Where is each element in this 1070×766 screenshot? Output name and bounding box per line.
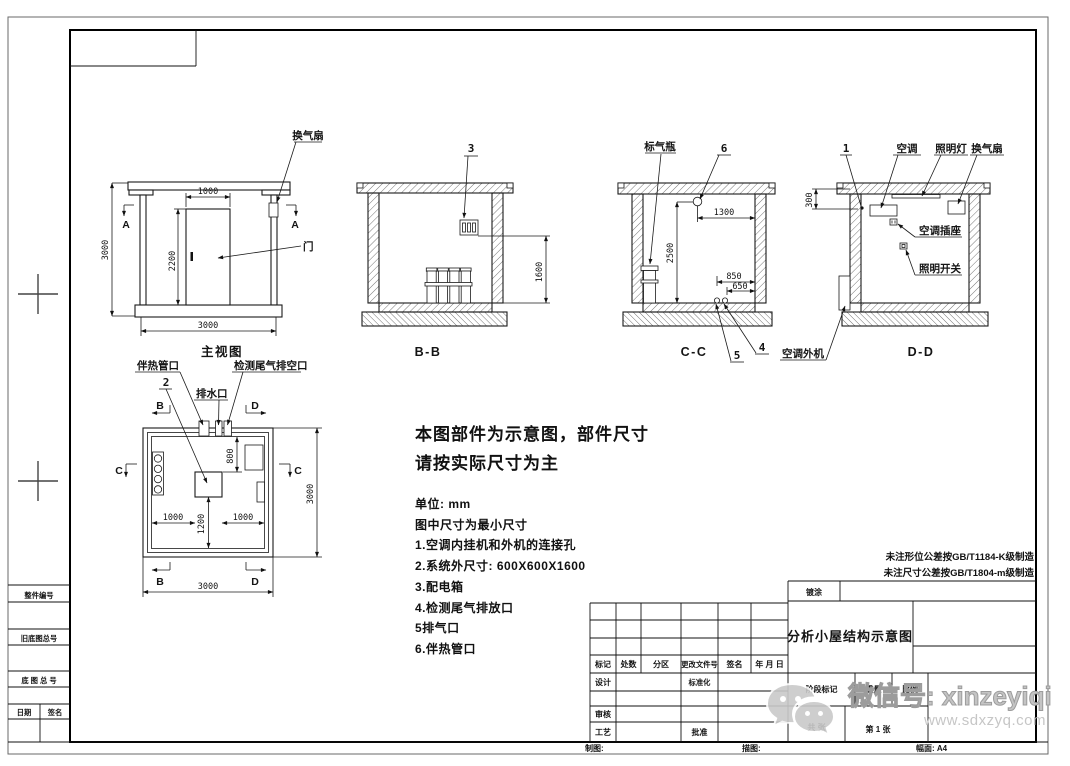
watermark-text: 微信号: xinzeyiqi www.sdxzyq.com xyxy=(848,680,1046,729)
fan-label: 换气扇 xyxy=(292,129,324,142)
drain-label: 排水口 xyxy=(196,387,228,400)
ac-indoor-unit xyxy=(870,205,897,216)
door-handle xyxy=(191,252,194,261)
register-mark xyxy=(18,274,58,314)
dim-text: 1000 xyxy=(198,187,218,197)
drawing-title: 分析小屋结构示意图 xyxy=(787,629,913,644)
note-unit: 单位: mm xyxy=(415,494,649,515)
watermark: 微信号: xinzeyiqi www.sdxzyq.com xyxy=(764,680,1046,744)
dim-text: 650 xyxy=(732,282,747,292)
side-row-3-label: 底 图 总 号 xyxy=(21,676,56,685)
callout-number: 1 xyxy=(843,142,850,155)
dim-1600: 1600 xyxy=(478,236,550,303)
lamp-label: 照明灯 xyxy=(935,142,967,155)
callout-number: 3 xyxy=(468,142,475,155)
section-letter: A xyxy=(291,219,299,231)
gas-cylinders xyxy=(425,268,472,303)
connection-hole xyxy=(860,206,863,209)
side-signature-label: 签名 xyxy=(47,708,63,717)
rev-header-signature: 签名 xyxy=(726,659,743,669)
draft-label: 制图: xyxy=(585,743,604,753)
dim-text: 1000 xyxy=(233,513,253,523)
format-label: 幅面: A4 xyxy=(916,743,948,753)
section-letter: D xyxy=(251,400,259,412)
light-switch xyxy=(900,243,907,249)
note-item-5: 5排气口 xyxy=(415,618,649,639)
cylinder-label: 标气瓶 xyxy=(643,140,676,153)
section-view-cc: 6 标气瓶 2500 1300 850 650 xyxy=(618,140,775,362)
door-label: 门 xyxy=(303,240,314,253)
section-mark-d-top: D xyxy=(246,400,266,413)
section-mark-b-top: B xyxy=(152,400,170,413)
base-slab xyxy=(842,312,988,326)
side-row-2-label: 旧底图总号 xyxy=(21,634,57,643)
socket-callout: 空调插座 xyxy=(898,224,962,237)
section-view-bb: 3 1600 B-B xyxy=(357,142,550,359)
tolerance-line-2: 未注尺寸公差按GB/T1804-m级制造 xyxy=(884,566,1034,582)
heat-trace-port xyxy=(693,197,702,211)
base-slab xyxy=(623,312,772,326)
gas-cylinder xyxy=(641,266,658,303)
right-wall xyxy=(755,194,766,303)
dim-text: 2200 xyxy=(168,251,178,271)
front-view: 1000 2200 3000 3000 A A 换气扇 xyxy=(101,129,324,359)
floor-slab xyxy=(861,303,969,312)
dim-text: 3000 xyxy=(198,321,218,331)
dim-650: 650 xyxy=(727,282,755,295)
exhaust-vent-label: 检测尾气排空口 xyxy=(234,359,308,372)
exhaust-vent-callout: 检测尾气排空口 xyxy=(228,359,308,425)
dim-text: 3000 xyxy=(306,484,316,504)
note-headline-1: 本图部件为示意图，部件尺寸 xyxy=(415,420,649,449)
dim-width-3000: 3000 xyxy=(141,317,276,336)
section-cc-title: C-C xyxy=(681,345,708,359)
ac-outdoor-label: 空调外机 xyxy=(782,347,824,360)
section-mark-d-bottom: D xyxy=(246,562,266,588)
role-process: 工艺 xyxy=(595,727,611,737)
section-letter: C xyxy=(294,465,302,477)
base-slab xyxy=(135,305,282,317)
dim-text: 3000 xyxy=(101,240,111,260)
section-letter: D xyxy=(251,576,259,588)
ac-socket xyxy=(890,219,897,225)
section-mark-a-right: A xyxy=(286,205,299,231)
watermark-website: www.sdxzyq.com xyxy=(848,712,1046,729)
floor-slab xyxy=(379,303,492,312)
ac-outdoor-callout: 空调外机 xyxy=(780,306,845,360)
dim-text: 800 xyxy=(226,448,236,463)
callout-3: 3 xyxy=(464,142,478,218)
note-headline-2: 请按实际尺寸为主 xyxy=(415,449,649,478)
note-item-3: 3.配电箱 xyxy=(415,577,649,598)
rev-header-change-doc: 更改文件号 xyxy=(680,660,717,669)
fan-label: 换气扇 xyxy=(971,142,1003,155)
role-review: 审核 xyxy=(595,709,611,719)
heat-pipe-label: 伴热管口 xyxy=(136,359,179,372)
door-callout: 门 xyxy=(218,240,314,258)
plan-view: 800 1000 1200 1000 3000 3000 B xyxy=(115,359,322,597)
role-approve: 批准 xyxy=(692,727,708,737)
exhaust-fan xyxy=(269,203,278,217)
callout-number: 2 xyxy=(163,376,170,389)
rev-header-count: 处数 xyxy=(620,659,638,669)
left-wall xyxy=(850,194,861,303)
section-mark-a-left: A xyxy=(122,205,134,231)
note-item-2: 2.系统外尺寸: 600X600X1600 xyxy=(415,556,649,577)
dim-text: 300 xyxy=(805,192,815,207)
dim-2500: 2500 xyxy=(666,202,693,303)
cylinder-rack xyxy=(153,452,164,495)
roof-slab xyxy=(357,183,513,193)
wall-box xyxy=(257,482,265,502)
rev-header-mark: 标记 xyxy=(594,659,611,669)
section-mark-c-right: C xyxy=(279,464,302,477)
dim-door-height: 2200 xyxy=(168,209,186,305)
dim-text: 1600 xyxy=(535,262,545,282)
exhaust-fan xyxy=(948,201,965,214)
wechat-icon xyxy=(764,680,848,744)
section-bb-title: B-B xyxy=(415,345,442,359)
floor-slab xyxy=(643,303,755,312)
note-item-1: 1.空调内挂机和外机的连接孔 xyxy=(415,535,649,556)
register-mark xyxy=(18,461,58,501)
callout-number: 4 xyxy=(759,341,766,354)
section-dd-title: D-D xyxy=(908,345,935,359)
left-wall xyxy=(140,195,146,305)
section-mark-b-bottom: B xyxy=(152,562,170,588)
analysis-system-box xyxy=(195,472,222,497)
dim-text: 1000 xyxy=(163,513,183,523)
socket-label: 空调插座 xyxy=(919,224,961,237)
roof-slab xyxy=(837,183,990,194)
floor-valves xyxy=(714,298,727,303)
heat-pipe-callout: 伴热管口 xyxy=(135,359,203,425)
right-wall xyxy=(969,194,980,303)
dim-text: 850 xyxy=(726,272,741,282)
note-item-4: 4.检测尾气排放口 xyxy=(415,598,649,619)
section-mark-c-left: C xyxy=(115,464,137,477)
section-letter: B xyxy=(156,576,164,588)
drawing-sheet: 1000 2200 3000 3000 A A 换气扇 xyxy=(0,0,1070,766)
section-view-dd: 1 空调 照明灯 换气扇 300 空调插座 xyxy=(780,142,1004,360)
role-design: 设计 xyxy=(595,677,611,687)
note-item-6: 6.伴热管口 xyxy=(415,639,649,660)
dim-text: 1200 xyxy=(197,514,207,534)
heat-pipe-port xyxy=(199,421,209,436)
section-letter: A xyxy=(122,219,130,231)
ac-label: 空调 xyxy=(897,142,918,155)
corner-box xyxy=(245,445,263,470)
side-row-1-label: 整件编号 xyxy=(23,591,53,600)
rev-header-zone: 分区 xyxy=(653,659,669,669)
section-letter: B xyxy=(156,400,164,412)
side-date-label: 日期 xyxy=(17,708,32,717)
left-wall xyxy=(632,194,643,303)
front-view-title: 主视图 xyxy=(201,344,243,359)
dim-3000-right: 3000 xyxy=(273,428,322,557)
dim-text: 2500 xyxy=(666,243,676,263)
tolerance-line-1: 未注形位公差按GB/T1184-K级制造 xyxy=(884,550,1034,566)
coating-cell: 镀涂 xyxy=(806,587,823,597)
ac-outdoor-unit xyxy=(839,276,850,310)
base-slab xyxy=(362,312,507,326)
callout-number: 5 xyxy=(734,349,741,362)
section-letter: C xyxy=(115,465,123,477)
callout-number: 6 xyxy=(721,142,728,155)
distribution-box xyxy=(460,220,478,235)
switch-callout: 照明开关 xyxy=(906,250,962,275)
watermark-wechat-id: 微信号: xinzeyiqi xyxy=(848,680,1046,712)
left-wall xyxy=(368,193,379,303)
ceiling-lamp xyxy=(892,195,940,199)
role-standardization: 标准化 xyxy=(688,678,712,687)
side-column: 整件编号 旧底图总号 底 图 总 号 日期 签名 xyxy=(8,585,70,742)
right-wall xyxy=(492,193,503,303)
trace-label: 描图: xyxy=(742,743,761,753)
switch-label: 照明开关 xyxy=(919,262,961,275)
dim-height-3000: 3000 xyxy=(101,183,135,316)
tolerance-notes: 未注形位公差按GB/T1184-K级制造 未注尺寸公差按GB/T1804-m级制… xyxy=(884,550,1034,581)
dim-1300: 1300 xyxy=(698,208,756,222)
dim-text: 3000 xyxy=(198,582,218,592)
rev-header-date: 年 月 日 xyxy=(755,659,783,669)
note-min-dim: 图中尺寸为最小尺寸 xyxy=(415,515,649,536)
roof-slab xyxy=(618,183,775,194)
notes-block: 本图部件为示意图，部件尺寸 请按实际尺寸为主 单位: mm 图中尺寸为最小尺寸 … xyxy=(415,420,649,660)
drain-callout: 排水口 xyxy=(194,387,228,425)
dim-text: 1300 xyxy=(714,208,734,218)
